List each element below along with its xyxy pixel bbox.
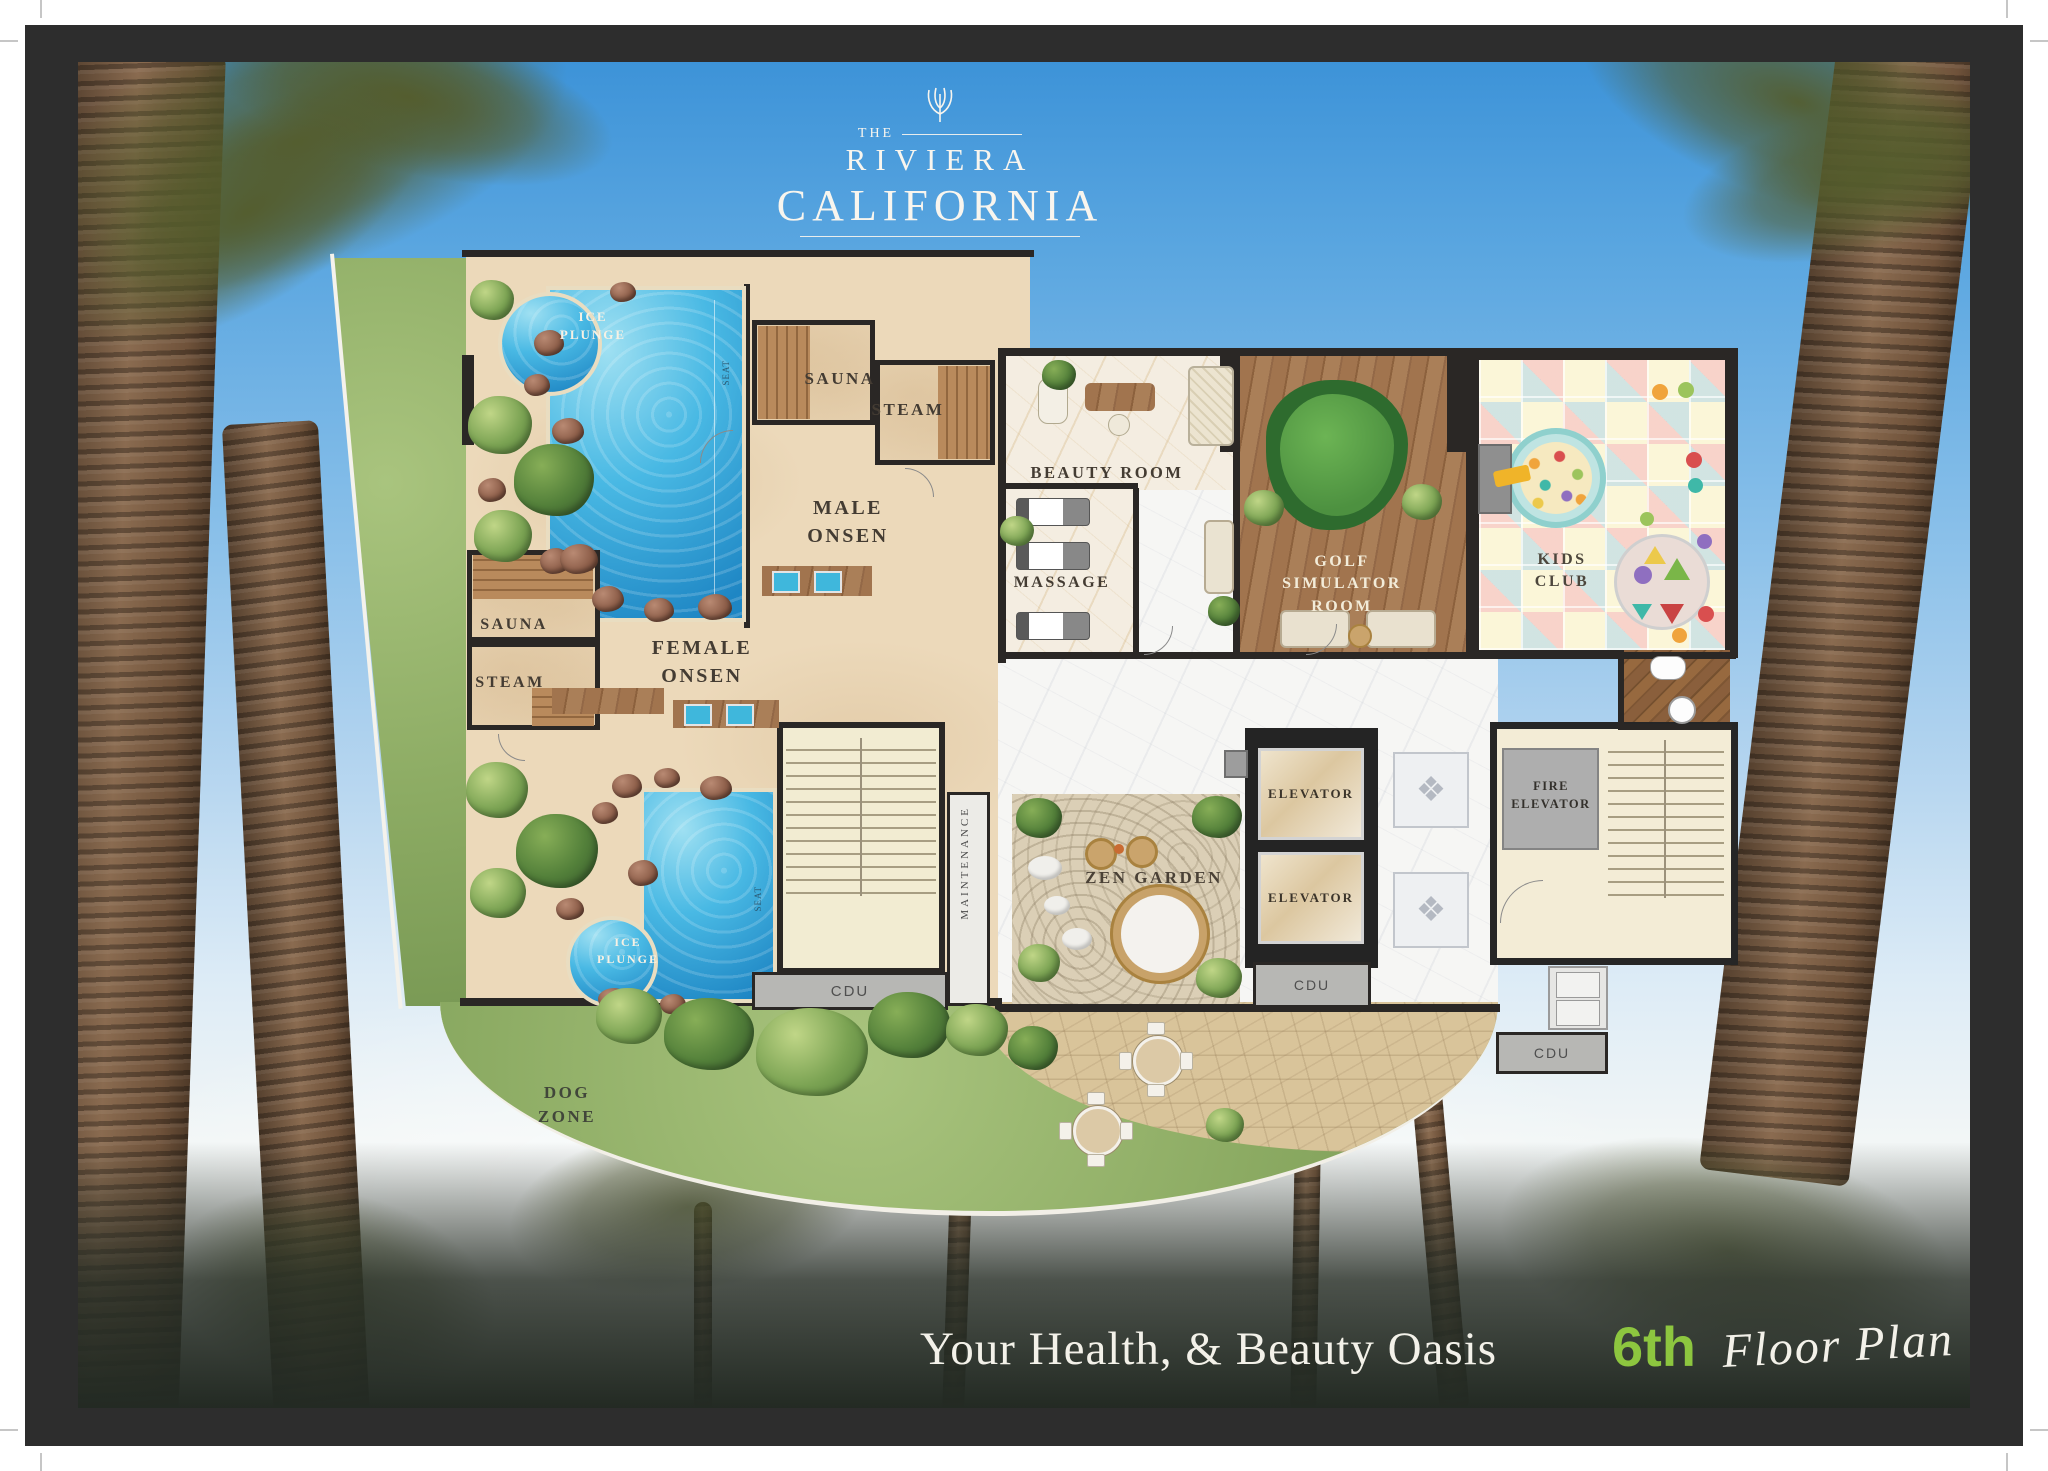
rock [654, 768, 680, 788]
tea-table [1126, 836, 1158, 868]
logo-name: RIVIERA [760, 142, 1120, 178]
rock [556, 898, 584, 920]
logo-underline [800, 236, 1080, 237]
bush [1192, 796, 1242, 838]
cdu-room: CDU [1253, 962, 1371, 1008]
toy-ball [1652, 384, 1668, 400]
cdu-label: CDU [831, 983, 870, 1000]
elevator-label: ELEVATOR [1268, 890, 1354, 906]
wall [1447, 352, 1467, 452]
utility-fixture [1556, 972, 1600, 998]
sink-basin [726, 704, 754, 726]
zen-stone [1044, 896, 1070, 915]
bush [466, 762, 528, 818]
bush [1000, 516, 1034, 546]
logo-ornament-icon [760, 84, 1120, 124]
patio-table [1133, 1036, 1183, 1086]
zen-daybed-cushion [1121, 895, 1199, 973]
patio-chair [1119, 1052, 1132, 1070]
male-onsen-label: MALE ONSEN [770, 494, 926, 550]
toy-ball [1688, 478, 1703, 493]
toy-ball [1678, 382, 1694, 398]
toy-ball [1672, 628, 1687, 643]
rock [552, 418, 584, 444]
desk-chair [1108, 414, 1130, 436]
patio-chair [1180, 1052, 1193, 1070]
toy-ball [1640, 512, 1654, 526]
bush [516, 814, 598, 888]
female-sauna-label: SAUNA [466, 614, 562, 636]
cdu-label: CDU [1534, 1045, 1570, 1061]
bush [1042, 360, 1076, 390]
wall [1002, 348, 1736, 356]
sink-basin [772, 571, 800, 593]
elevator-car: ELEVATOR [1258, 852, 1364, 944]
ice-plunge-label: ICE PLUNGE [578, 934, 678, 968]
bush [1206, 1108, 1244, 1142]
male-steam-label: STEAM [860, 398, 956, 422]
rock [628, 860, 658, 886]
bush [514, 444, 594, 516]
floor-medallion: ❖ [1393, 752, 1469, 828]
wall [462, 250, 1034, 257]
crop-mark [2030, 40, 2048, 42]
rock [698, 594, 732, 620]
massage-bed [1016, 542, 1090, 570]
bush [664, 998, 754, 1070]
cdu-room: CDU [1496, 1032, 1608, 1074]
corridor-sofa [1204, 520, 1234, 594]
beauty-desk [1085, 383, 1155, 411]
brand-logo: THE RIVIERA CALIFORNIA [760, 84, 1120, 237]
toy-circle [1634, 566, 1652, 584]
rock [612, 774, 642, 798]
bush [468, 396, 532, 454]
wall [1133, 488, 1139, 658]
dog-zone-label: DOG ZONE [517, 1081, 617, 1129]
rock [524, 374, 550, 396]
sink-basin [814, 571, 842, 593]
seat-label: SEAT [752, 886, 765, 912]
maintenance-label: MAINTENANCE [958, 806, 973, 920]
zen-stone [1062, 928, 1092, 950]
wall [1618, 650, 1624, 730]
massage-bed [1016, 612, 1090, 640]
toy-ball [1697, 534, 1712, 549]
fire-elevator-label: FIRE ELEVATOR [1504, 778, 1598, 813]
seat-label: SEAT [720, 360, 733, 386]
logo-rule [902, 134, 1022, 135]
ice-plunge-label: ICE PLUNGE [528, 308, 658, 344]
footer-tagline: Your Health, & Beauty Oasis [920, 1322, 1497, 1376]
toy-ball [1698, 606, 1714, 622]
wall [1466, 352, 1474, 654]
female-onsen-label: FEMALE ONSEN [622, 634, 782, 690]
fire-stair-treads [1608, 740, 1724, 898]
patio-chair [1147, 1022, 1165, 1035]
patio-chair [1087, 1092, 1105, 1105]
footer-floor-number: 6th [1612, 1314, 1696, 1379]
toy-ball [1686, 452, 1702, 468]
vanity-counter [552, 688, 664, 714]
rock [560, 544, 598, 574]
bush [596, 988, 662, 1044]
bush [474, 510, 532, 562]
side-table [1348, 624, 1372, 648]
rock [700, 776, 732, 800]
bush [1402, 484, 1442, 520]
patio-chair [1059, 1122, 1072, 1140]
crop-mark [2006, 0, 2008, 18]
golf-simulator-label: GOLF SIMULATOR ROOM [1252, 551, 1432, 618]
patio-chair [1120, 1122, 1133, 1140]
crop-mark [40, 0, 42, 18]
zen-stone [1028, 856, 1062, 880]
toy-triangle [1664, 558, 1690, 580]
male-sauna-label: SAUNA [792, 367, 888, 391]
elevator-car: ELEVATOR [1258, 748, 1364, 840]
lattice-daybed [1188, 366, 1234, 446]
toy-triangle [1644, 546, 1666, 564]
medallion-icon: ❖ [1416, 890, 1446, 930]
zen-bowl [1114, 844, 1124, 854]
rock [610, 282, 636, 302]
bush [470, 868, 526, 918]
sink-basin [684, 704, 712, 726]
patio-chair [1147, 1084, 1165, 1097]
kids-club-label: KIDS CLUB [1514, 549, 1610, 594]
elevator-label: ELEVATOR [1268, 786, 1354, 802]
female-steam-label: STEAM [462, 672, 558, 694]
bush [868, 992, 950, 1058]
patio-chair [1087, 1154, 1105, 1167]
wall [1002, 652, 1736, 659]
bush [1208, 596, 1240, 626]
bush [470, 280, 514, 320]
round-sink [1668, 696, 1696, 724]
crop-mark [40, 1453, 42, 1471]
logo-the: THE [858, 126, 894, 142]
bush [946, 1004, 1008, 1056]
toilet [1650, 656, 1686, 680]
rock [592, 586, 624, 612]
rock [592, 802, 618, 824]
crop-mark [0, 1429, 18, 1431]
bush [756, 1008, 868, 1096]
toy-triangle [1660, 604, 1684, 624]
stair-rail [1664, 740, 1666, 898]
medallion-icon: ❖ [1416, 770, 1446, 810]
zen-garden-label: ZEN GARDEN [1084, 866, 1224, 890]
bush [1196, 958, 1242, 998]
bush [1244, 490, 1284, 526]
patio-table [1073, 1106, 1123, 1156]
bush [1016, 798, 1062, 838]
wall [998, 348, 1006, 663]
lobby-sink [1224, 750, 1248, 778]
wall [1620, 724, 1732, 730]
rock [644, 598, 674, 622]
logo-location: CALIFORNIA [760, 180, 1120, 231]
crop-mark [0, 40, 18, 42]
massage-label: MASSAGE [1002, 572, 1122, 594]
stair-rail [860, 738, 862, 896]
floor-medallion: ❖ [1393, 872, 1469, 948]
rock [478, 478, 506, 502]
bush [1008, 1026, 1058, 1070]
floor-plan-poster: ICE PLUNGE SEAT SAUNA STEAM MALE ONSEN S… [0, 0, 2048, 1471]
wall [1730, 348, 1738, 658]
utility-fixture [1556, 1000, 1600, 1026]
bush [1018, 944, 1060, 982]
toy-triangle [1632, 604, 1652, 620]
wall [995, 1004, 1500, 1012]
cdu-label: CDU [1294, 977, 1330, 993]
crop-mark [2030, 1429, 2048, 1431]
crop-mark [2006, 1453, 2008, 1471]
beauty-room-label: BEAUTY ROOM [1027, 461, 1187, 484]
